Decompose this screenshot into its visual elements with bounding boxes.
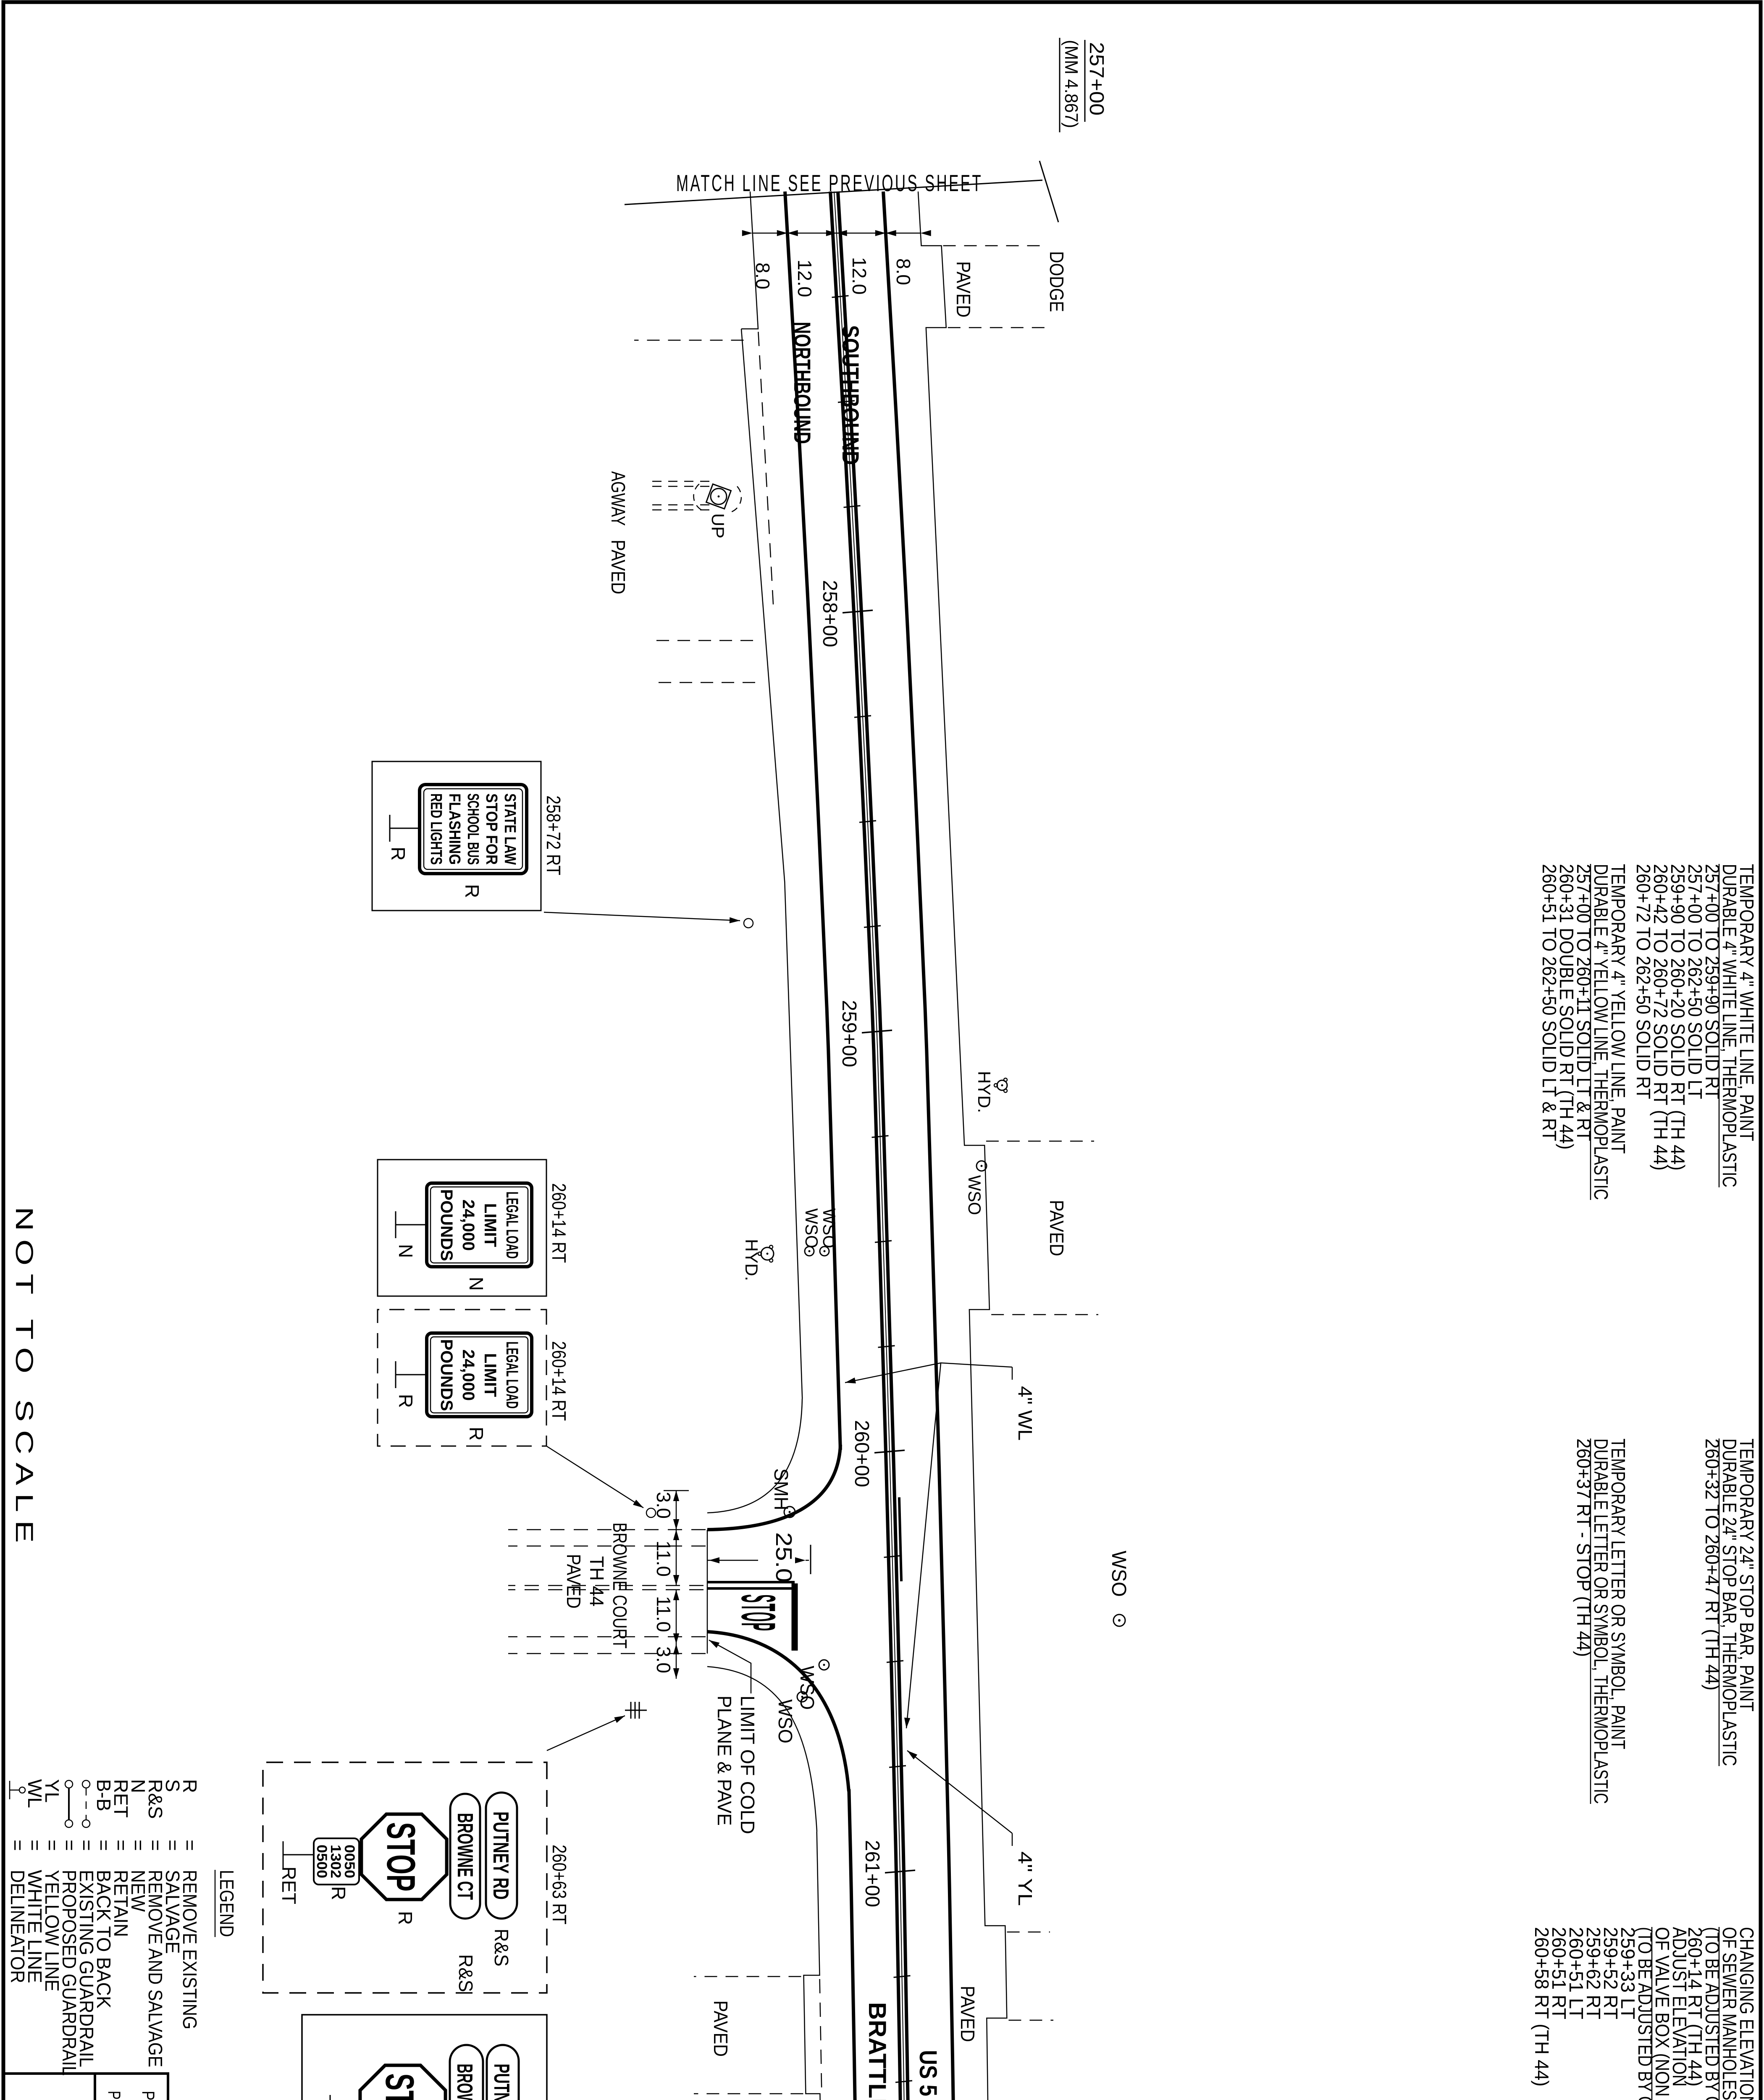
svg-text:WSO: WSO [965, 1175, 984, 1215]
svg-text:FLASHING: FLASHING [446, 793, 463, 865]
svg-text:8.0: 8.0 [892, 258, 914, 285]
svg-text:PROJECT NAME:: PROJECT NAME: [139, 2091, 158, 2100]
svg-text:DODGE: DODGE [1046, 251, 1068, 312]
svg-text:LIMIT: LIMIT [481, 1353, 499, 1397]
svg-text:SOUTHBOUND: SOUTHBOUND [837, 325, 864, 465]
svg-text:BROWNE CT: BROWNE CT [453, 1813, 477, 1900]
svg-text:PUTNEY RD: PUTNEY RD [488, 1811, 513, 1900]
svg-text:WSO: WSO [802, 1208, 822, 1248]
svg-text:24,000: 24,000 [459, 1349, 478, 1401]
svg-text:3.0: 3.0 [653, 1646, 675, 1673]
svg-text:260+14 RT: 260+14 RT [548, 1183, 570, 1263]
svg-text:260+32 TO 260+47 RT (TH 44): 260+32 TO 260+47 RT (TH 44) [1701, 1438, 1723, 1690]
svg-text:UP: UP [708, 513, 728, 538]
svg-text:STATE LAW: STATE LAW [501, 793, 519, 865]
svg-text:260+51 TO 262+50 SOLID LT & RT: 260+51 TO 262+50 SOLID LT & RT [1538, 864, 1560, 1141]
svg-text:PAVED: PAVED [953, 261, 974, 318]
svg-text:258+72 RT: 258+72 RT [543, 795, 564, 875]
svg-text:WSO: WSO [774, 1699, 796, 1743]
svg-text:PROJECT NUMBER:: PROJECT NUMBER: [105, 2091, 124, 2100]
svg-text:BROWNE COURT: BROWNE COURT [609, 1522, 631, 1648]
svg-text:HYD.: HYD. [974, 1071, 994, 1113]
svg-text:R: R [395, 1394, 417, 1408]
svg-text:STOP: STOP [731, 1594, 785, 1632]
svg-text:PAVED: PAVED [607, 540, 629, 594]
svg-text:258+00: 258+00 [819, 580, 841, 647]
svg-text:R&S: R&S [491, 1929, 512, 1966]
svg-text:25.0: 25.0 [771, 1532, 796, 1583]
svg-text:PAVED: PAVED [1046, 1200, 1068, 1256]
svg-text:=: = [7, 1840, 29, 1851]
svg-text:11.0: 11.0 [653, 1596, 675, 1632]
svg-text:WSO: WSO [796, 1666, 818, 1710]
svg-text:AGWAY: AGWAY [607, 471, 629, 526]
svg-text:US 5: US 5 [914, 2050, 942, 2096]
svg-text:4" WL: 4" WL [1014, 1386, 1036, 1441]
svg-text:HYD.: HYD. [742, 1239, 761, 1281]
svg-text:LIMIT: LIMIT [481, 1203, 499, 1247]
svg-text:LEGEND: LEGEND [216, 1870, 238, 1937]
svg-text:POUNDS: POUNDS [437, 1189, 456, 1261]
svg-text:N: N [395, 1244, 417, 1258]
svg-text:3.0: 3.0 [653, 1492, 675, 1519]
svg-text:8.0: 8.0 [752, 262, 774, 289]
svg-text:0500: 0500 [314, 1845, 330, 1878]
svg-text:260+00: 260+00 [850, 1420, 873, 1487]
svg-text:TH 44: TH 44 [586, 1556, 608, 1606]
svg-text:PUTNEY RD: PUTNEY RD [489, 2064, 514, 2100]
svg-text:N: N [465, 1277, 487, 1291]
svg-text:R: R [387, 847, 409, 861]
svg-text:WL: WL [24, 1779, 46, 1808]
svg-text:SMH: SMH [770, 1468, 792, 1510]
svg-text:SCHOOL BUS: SCHOOL BUS [464, 793, 482, 865]
svg-text:(MM 4.867): (MM 4.867) [1061, 40, 1081, 128]
svg-text:R: R [394, 1911, 416, 1925]
svg-text:NORTHBOUND: NORTHBOUND [789, 322, 816, 444]
svg-text:260+72 TO 262+50 SOLID RT: 260+72 TO 262+50 SOLID RT [1633, 864, 1654, 1099]
svg-text:260+58 RT (TH 44): 260+58 RT (TH 44) [1531, 1927, 1553, 2087]
svg-text:BROWNE CT: BROWNE CT [452, 2064, 477, 2100]
svg-text:RED LIGHTS: RED LIGHTS [427, 793, 445, 865]
svg-text:MATCH LINE SEE PREVIOUS SHE: MATCH LINE SEE PREVIOUS SHEET [676, 170, 983, 196]
svg-text:STOP FOR: STOP FOR [483, 793, 500, 865]
svg-text:LEGAL LOAD: LEGAL LOAD [503, 1192, 521, 1259]
svg-text:12.0: 12.0 [794, 260, 816, 297]
svg-text:LEGAL LOAD: LEGAL LOAD [503, 1341, 521, 1409]
svg-text:4" YL: 4" YL [1014, 1851, 1036, 1906]
svg-text:WSO: WSO [1108, 1551, 1130, 1597]
svg-text:R: R [465, 1427, 487, 1441]
svg-text:PAVED: PAVED [957, 1986, 979, 2042]
svg-text:RET: RET [278, 1866, 300, 1904]
svg-text:STOP: STOP [378, 1822, 423, 1892]
svg-text:R: R [461, 884, 483, 898]
svg-text:12.0: 12.0 [848, 257, 870, 295]
svg-text:B-B: B-B [93, 1779, 115, 1811]
svg-text:DELINEATOR: DELINEATOR [7, 1870, 29, 1983]
svg-text:260+14 RT: 260+14 RT [548, 1341, 570, 1421]
svg-text:259+00: 259+00 [838, 1000, 860, 1067]
svg-text:PAVED: PAVED [563, 1554, 585, 1609]
svg-text:POUNDS: POUNDS [437, 1339, 456, 1411]
svg-text:PAVED: PAVED [710, 2000, 732, 2057]
svg-text:R&S: R&S [455, 1954, 477, 1992]
svg-text:STOP: STOP [377, 2074, 422, 2100]
svg-text:261+00: 261+00 [861, 1840, 883, 1907]
svg-text:11.0: 11.0 [653, 1541, 675, 1577]
svg-text:PLANE & PAVE: PLANE & PAVE [714, 1696, 735, 1826]
svg-text:R: R [328, 1886, 349, 1900]
svg-text:260+63 RT: 260+63 RT [549, 1845, 570, 1924]
svg-text:257+00: 257+00 [1085, 42, 1108, 115]
svg-text:WSO: WSO [819, 1208, 839, 1248]
svg-text:NOT TO SCALE: NOT TO SCALE [10, 1207, 38, 1551]
svg-text:260+37 RT - STOP (TH 44): 260+37 RT - STOP (TH 44) [1573, 1438, 1595, 1657]
svg-text:BRATTLEBORO: BRATTLEBORO [864, 2002, 891, 2100]
svg-text:LIMIT OF COLD: LIMIT OF COLD [737, 1696, 759, 1834]
svg-text:24,000: 24,000 [459, 1200, 478, 1251]
